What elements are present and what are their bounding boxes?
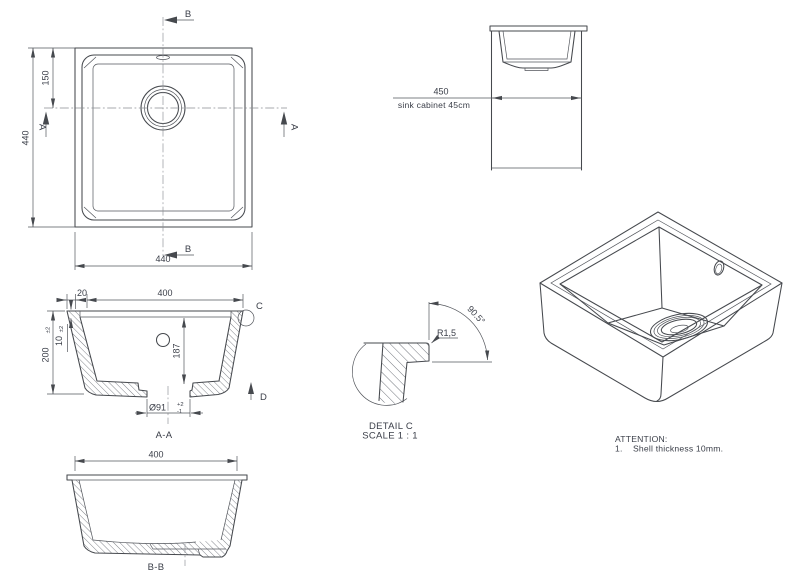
rim-corner-chamfers xyxy=(84,57,243,218)
dim-aa-opening: 400 xyxy=(87,288,243,308)
dim-aa-opening-value: 400 xyxy=(157,288,172,298)
section-cut-a-left: A xyxy=(37,112,50,138)
detail-c-label: C xyxy=(256,301,263,312)
dim-aa-drain-tol-lower: -1 xyxy=(177,409,182,415)
dim-drain-offset: 150 xyxy=(41,48,54,108)
dim-aa-drain-value: Ø91 xyxy=(149,403,166,413)
sink-rim-outer xyxy=(82,55,245,220)
countertop xyxy=(490,26,587,31)
dim-aa-shell-value: 10 xyxy=(54,336,64,346)
dim-aa-shell-tol: ±2 xyxy=(59,326,65,332)
attention-item-number: 1. xyxy=(615,444,623,454)
dim-plan-height-value: 440 xyxy=(21,130,31,145)
dim-detail-radius: R1,5 xyxy=(432,328,459,343)
dim-aa-rim: 20 xyxy=(57,288,87,309)
section-bb-material xyxy=(67,475,247,557)
iso-overflow-hole xyxy=(713,260,726,276)
section-bb-title: B-B xyxy=(148,562,165,573)
iso-front-corner-edge xyxy=(657,357,663,401)
dim-aa-depth-value: 187 xyxy=(172,343,182,358)
dim-aa-height-tol: ±2 xyxy=(46,327,52,333)
section-cut-b-top: B xyxy=(164,9,194,24)
attention-note: ATTENTION: 1. Shell thickness 10mm. xyxy=(615,434,723,454)
dim-plan-width: 440 xyxy=(75,232,252,270)
section-label-a-left: A xyxy=(37,124,48,131)
sink-drawing-svg: 440 150 440 B B A xyxy=(0,0,800,579)
section-aa-material xyxy=(67,311,243,397)
direction-d-label: D xyxy=(260,392,267,403)
section-aa-title: A-A xyxy=(156,430,173,441)
cabinet-label: sink cabinet 45cm xyxy=(398,100,470,110)
detail-c-view: 90.5° R1,5 DETAIL C SCALE 1 : 1 xyxy=(352,302,492,442)
direction-d-arrow-icon xyxy=(248,382,254,394)
dim-bb-opening-value: 400 xyxy=(148,450,163,460)
section-cut-a-right: A xyxy=(281,112,300,138)
section-arrow-a-right-icon xyxy=(281,112,287,125)
section-label-b-bottom: B xyxy=(185,244,191,255)
section-label-a-right: A xyxy=(289,124,300,131)
dim-bb-opening: 400 xyxy=(75,450,237,472)
sink-outer-edge xyxy=(75,48,252,227)
section-aa-view: 20 400 200 ±2 10 ±2 187 xyxy=(41,288,268,441)
dim-aa-depth: 187 xyxy=(172,318,185,384)
dim-aa-rim-value: 20 xyxy=(77,288,87,298)
plan-view: 440 150 440 B B A xyxy=(21,9,300,270)
dim-aa-height-value: 200 xyxy=(41,347,51,362)
attention-item-text: Shell thickness 10mm. xyxy=(633,444,723,454)
dim-aa-shell: 10 ±2 xyxy=(54,301,71,352)
iso-inner-corner-edges xyxy=(560,227,762,326)
dim-detail-radius-value: R1,5 xyxy=(437,328,456,338)
cabinet-view: 450 sink cabinet 45cm xyxy=(393,26,587,170)
section-bb-view: 400 B-B xyxy=(67,450,247,574)
cabinet-bowl xyxy=(499,31,575,71)
dim-aa-drain-tol-upper: +2 xyxy=(177,402,184,408)
dim-cabinet-width: 450 sink cabinet 45cm xyxy=(393,87,582,111)
dim-cabinet-width-value: 450 xyxy=(433,87,448,97)
overflow-hole-section xyxy=(157,334,170,347)
dim-aa-drain: Ø91 +2 -1 xyxy=(135,399,203,417)
section-arrow-a-left-icon xyxy=(43,112,49,125)
dim-detail-angle-value: 90.5° xyxy=(465,304,487,327)
section-arrow-b-top-icon xyxy=(164,17,177,24)
direction-d-marker: D xyxy=(248,382,267,403)
technical-drawing-page: 440 150 440 B B A xyxy=(0,0,800,579)
isometric-view xyxy=(540,212,782,402)
attention-title: ATTENTION: xyxy=(615,434,667,444)
iso-outer-shell xyxy=(540,283,782,402)
section-label-b-top: B xyxy=(185,9,191,20)
dim-drain-offset-value: 150 xyxy=(41,70,51,85)
detail-c-scale: SCALE 1 : 1 xyxy=(362,431,418,442)
